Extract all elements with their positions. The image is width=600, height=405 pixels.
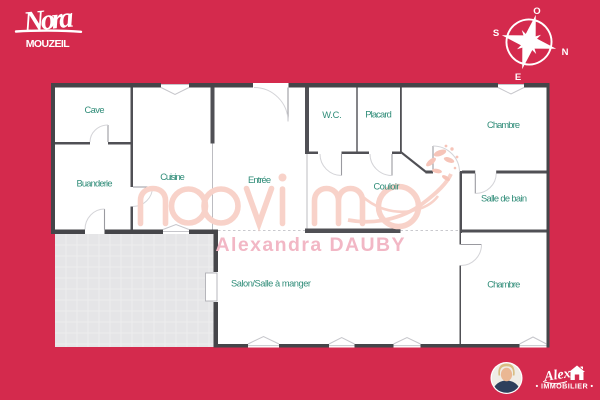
svg-text:E: E [515, 72, 521, 83]
svg-text:S: S [493, 28, 499, 39]
svg-text:Salle de bain: Salle de bain [481, 194, 527, 204]
svg-text:Couloir: Couloir [374, 182, 400, 192]
svg-text:W.C.: W.C. [322, 110, 342, 120]
svg-text:Placard: Placard [365, 110, 392, 120]
svg-text:MOUZEIL: MOUZEIL [26, 38, 72, 50]
svg-text:Buanderie: Buanderie [77, 179, 113, 189]
svg-text:Entrée: Entrée [248, 175, 271, 185]
svg-text:Cave: Cave [85, 105, 105, 115]
svg-text:Salon/Salle à manger: Salon/Salle à manger [231, 279, 311, 289]
svg-text:Alexandra DAUBY: Alexandra DAUBY [216, 234, 405, 256]
svg-text:• IMMOBILIER •: • IMMOBILIER • [536, 382, 594, 391]
svg-text:Chambre: Chambre [487, 120, 520, 130]
svg-text:O: O [533, 6, 540, 17]
svg-text:Nora: Nora [21, 2, 75, 39]
svg-text:N: N [562, 47, 569, 58]
svg-text:Cuisine: Cuisine [160, 172, 185, 182]
svg-text:Chambre: Chambre [487, 280, 520, 290]
